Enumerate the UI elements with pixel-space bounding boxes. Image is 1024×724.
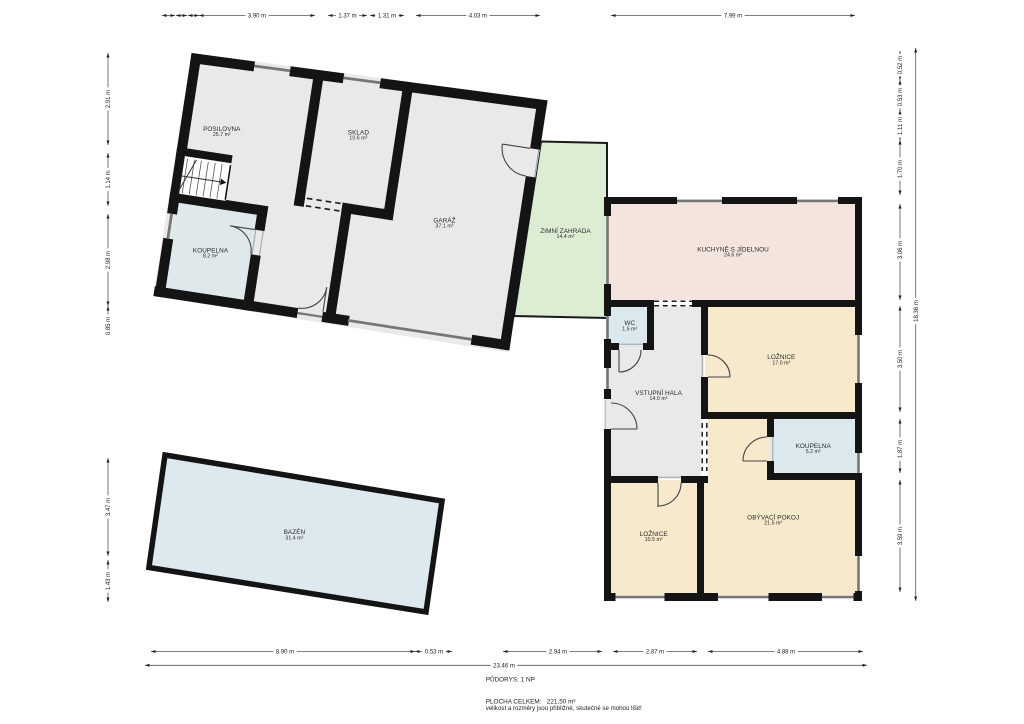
svg-text:2.87 m: 2.87 m [646,650,664,656]
svg-text:21.5 m²: 21.5 m² [764,521,782,527]
svg-text:25.7 m²: 25.7 m² [213,132,231,138]
svg-text:3.90 m: 3.90 m [248,14,266,20]
svg-text:1.31 m: 1.31 m [378,14,396,20]
svg-text:14.0 m²: 14.0 m² [650,396,668,402]
svg-text:1.14 m: 1.14 m [106,170,112,188]
svg-text:5.2 m²: 5.2 m² [806,449,821,455]
svg-text:3.06 m: 3.06 m [898,241,904,259]
svg-text:1.87 m: 1.87 m [898,440,904,458]
svg-text:0.52 m: 0.52 m [898,56,904,74]
svg-text:31.4 m²: 31.4 m² [285,535,303,541]
svg-text:3.59 m: 3.59 m [898,527,904,545]
svg-text:3.47 m: 3.47 m [106,498,112,516]
svg-text:4.88 m: 4.88 m [777,650,795,656]
svg-text:18.36 m: 18.36 m [914,300,920,322]
svg-text:2.94 m: 2.94 m [549,650,567,656]
svg-text:23.46 m: 23.46 m [493,664,515,670]
svg-text:4.03 m: 4.03 m [469,14,487,20]
svg-text:8.90 m: 8.90 m [276,650,294,656]
svg-text:1.11 m: 1.11 m [898,117,904,135]
svg-text:PŮDORYS: 1 NP: PŮDORYS: 1 NP [486,675,535,684]
svg-text:24.6 m²: 24.6 m² [724,253,742,259]
svg-text:1.5 m²: 1.5 m² [622,326,637,332]
svg-text:0.53 m: 0.53 m [898,88,904,106]
svg-text:7.99 m: 7.99 m [724,14,742,20]
svg-text:37.1 m²: 37.1 m² [436,224,454,230]
svg-text:1.37 m: 1.37 m [338,14,356,20]
svg-text:0.53 m: 0.53 m [425,650,443,656]
svg-text:14.4 m²: 14.4 m² [557,234,575,240]
svg-text:2.98 m: 2.98 m [106,251,112,269]
svg-text:8.2 m²: 8.2 m² [203,254,218,260]
svg-text:1.43 m: 1.43 m [106,572,112,590]
svg-text:17.0 m²: 17.0 m² [772,360,790,366]
svg-text:1.70 m: 1.70 m [898,160,904,178]
svg-text:3.50 m: 3.50 m [898,350,904,368]
svg-text:0.85 m: 0.85 m [106,317,112,335]
svg-text:2.91 m: 2.91 m [106,90,112,108]
svg-text:velikost a rozměry jsou přibli: velikost a rozměry jsou přibližné, skute… [486,705,642,712]
svg-text:10.5 m²: 10.5 m² [645,537,663,543]
svg-text:10.6 m²: 10.6 m² [349,136,367,142]
